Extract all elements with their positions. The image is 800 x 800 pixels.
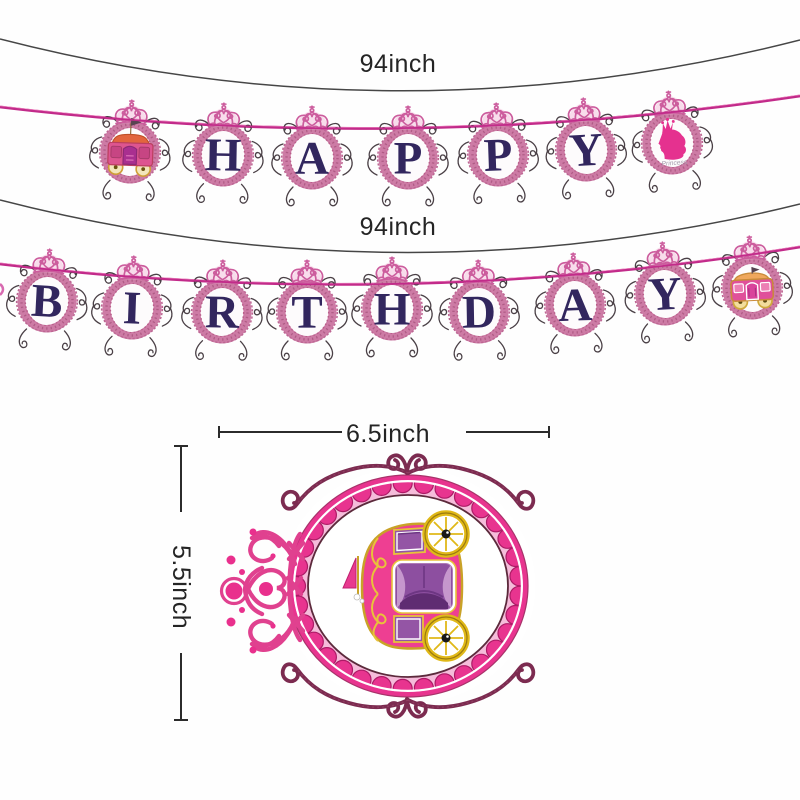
- svg-text:R: R: [205, 286, 241, 339]
- svg-text:P: P: [394, 133, 423, 185]
- svg-text:Y: Y: [647, 268, 684, 322]
- svg-text:P: P: [483, 129, 514, 182]
- svg-text:6.5inch: 6.5inch: [346, 420, 430, 448]
- svg-text:D: D: [462, 286, 497, 339]
- svg-text:I: I: [122, 282, 142, 335]
- svg-text:B: B: [30, 275, 64, 329]
- svg-text:Y: Y: [568, 124, 605, 178]
- svg-text:T: T: [291, 287, 322, 339]
- svg-text:H: H: [374, 284, 411, 336]
- svg-text:A: A: [557, 279, 593, 332]
- svg-text:5.5inch: 5.5inch: [167, 545, 195, 629]
- svg-text:94inch: 94inch: [360, 213, 437, 241]
- svg-text:94inch: 94inch: [360, 50, 437, 78]
- svg-text:A: A: [295, 133, 329, 185]
- svg-text:H: H: [204, 129, 241, 182]
